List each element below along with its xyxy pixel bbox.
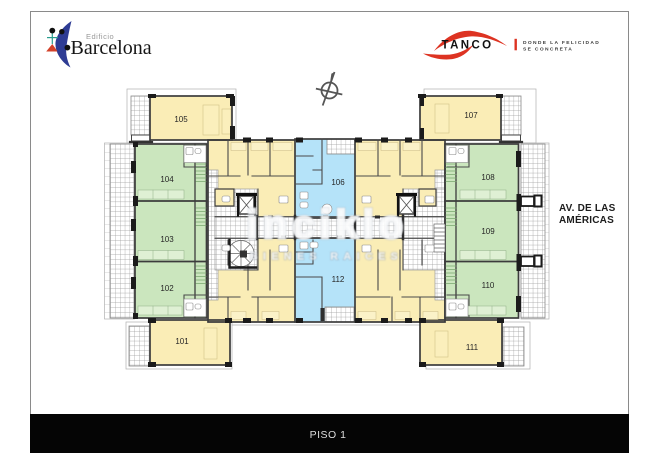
svg-text:109: 109	[481, 227, 495, 236]
svg-text:111: 111	[466, 343, 479, 352]
svg-text:104: 104	[160, 175, 174, 184]
svg-text:DONDE LA FELICIDAD: DONDE LA FELICIDAD	[523, 40, 600, 46]
svg-text:TANCO: TANCO	[442, 40, 494, 52]
svg-text:inciklo: inciklo	[247, 203, 409, 247]
svg-text:AV. DE LAS: AV. DE LAS	[559, 203, 616, 214]
svg-text:105: 105	[174, 115, 188, 124]
svg-text:Barcelona: Barcelona	[71, 37, 152, 59]
svg-text:101: 101	[175, 337, 189, 346]
svg-text:103: 103	[160, 235, 174, 244]
svg-text:110: 110	[482, 281, 495, 290]
svg-text:SE CONCRETA: SE CONCRETA	[523, 46, 573, 52]
svg-text:PISO 1: PISO 1	[310, 429, 347, 441]
svg-text:108: 108	[481, 173, 495, 182]
svg-text:107: 107	[464, 111, 478, 120]
svg-text:AMÉRICAS: AMÉRICAS	[559, 213, 614, 226]
svg-text:112: 112	[332, 275, 345, 284]
svg-text:106: 106	[331, 178, 345, 187]
svg-text:102: 102	[160, 284, 174, 293]
svg-text:BIENES RAICES: BIENES RAICES	[250, 251, 403, 263]
